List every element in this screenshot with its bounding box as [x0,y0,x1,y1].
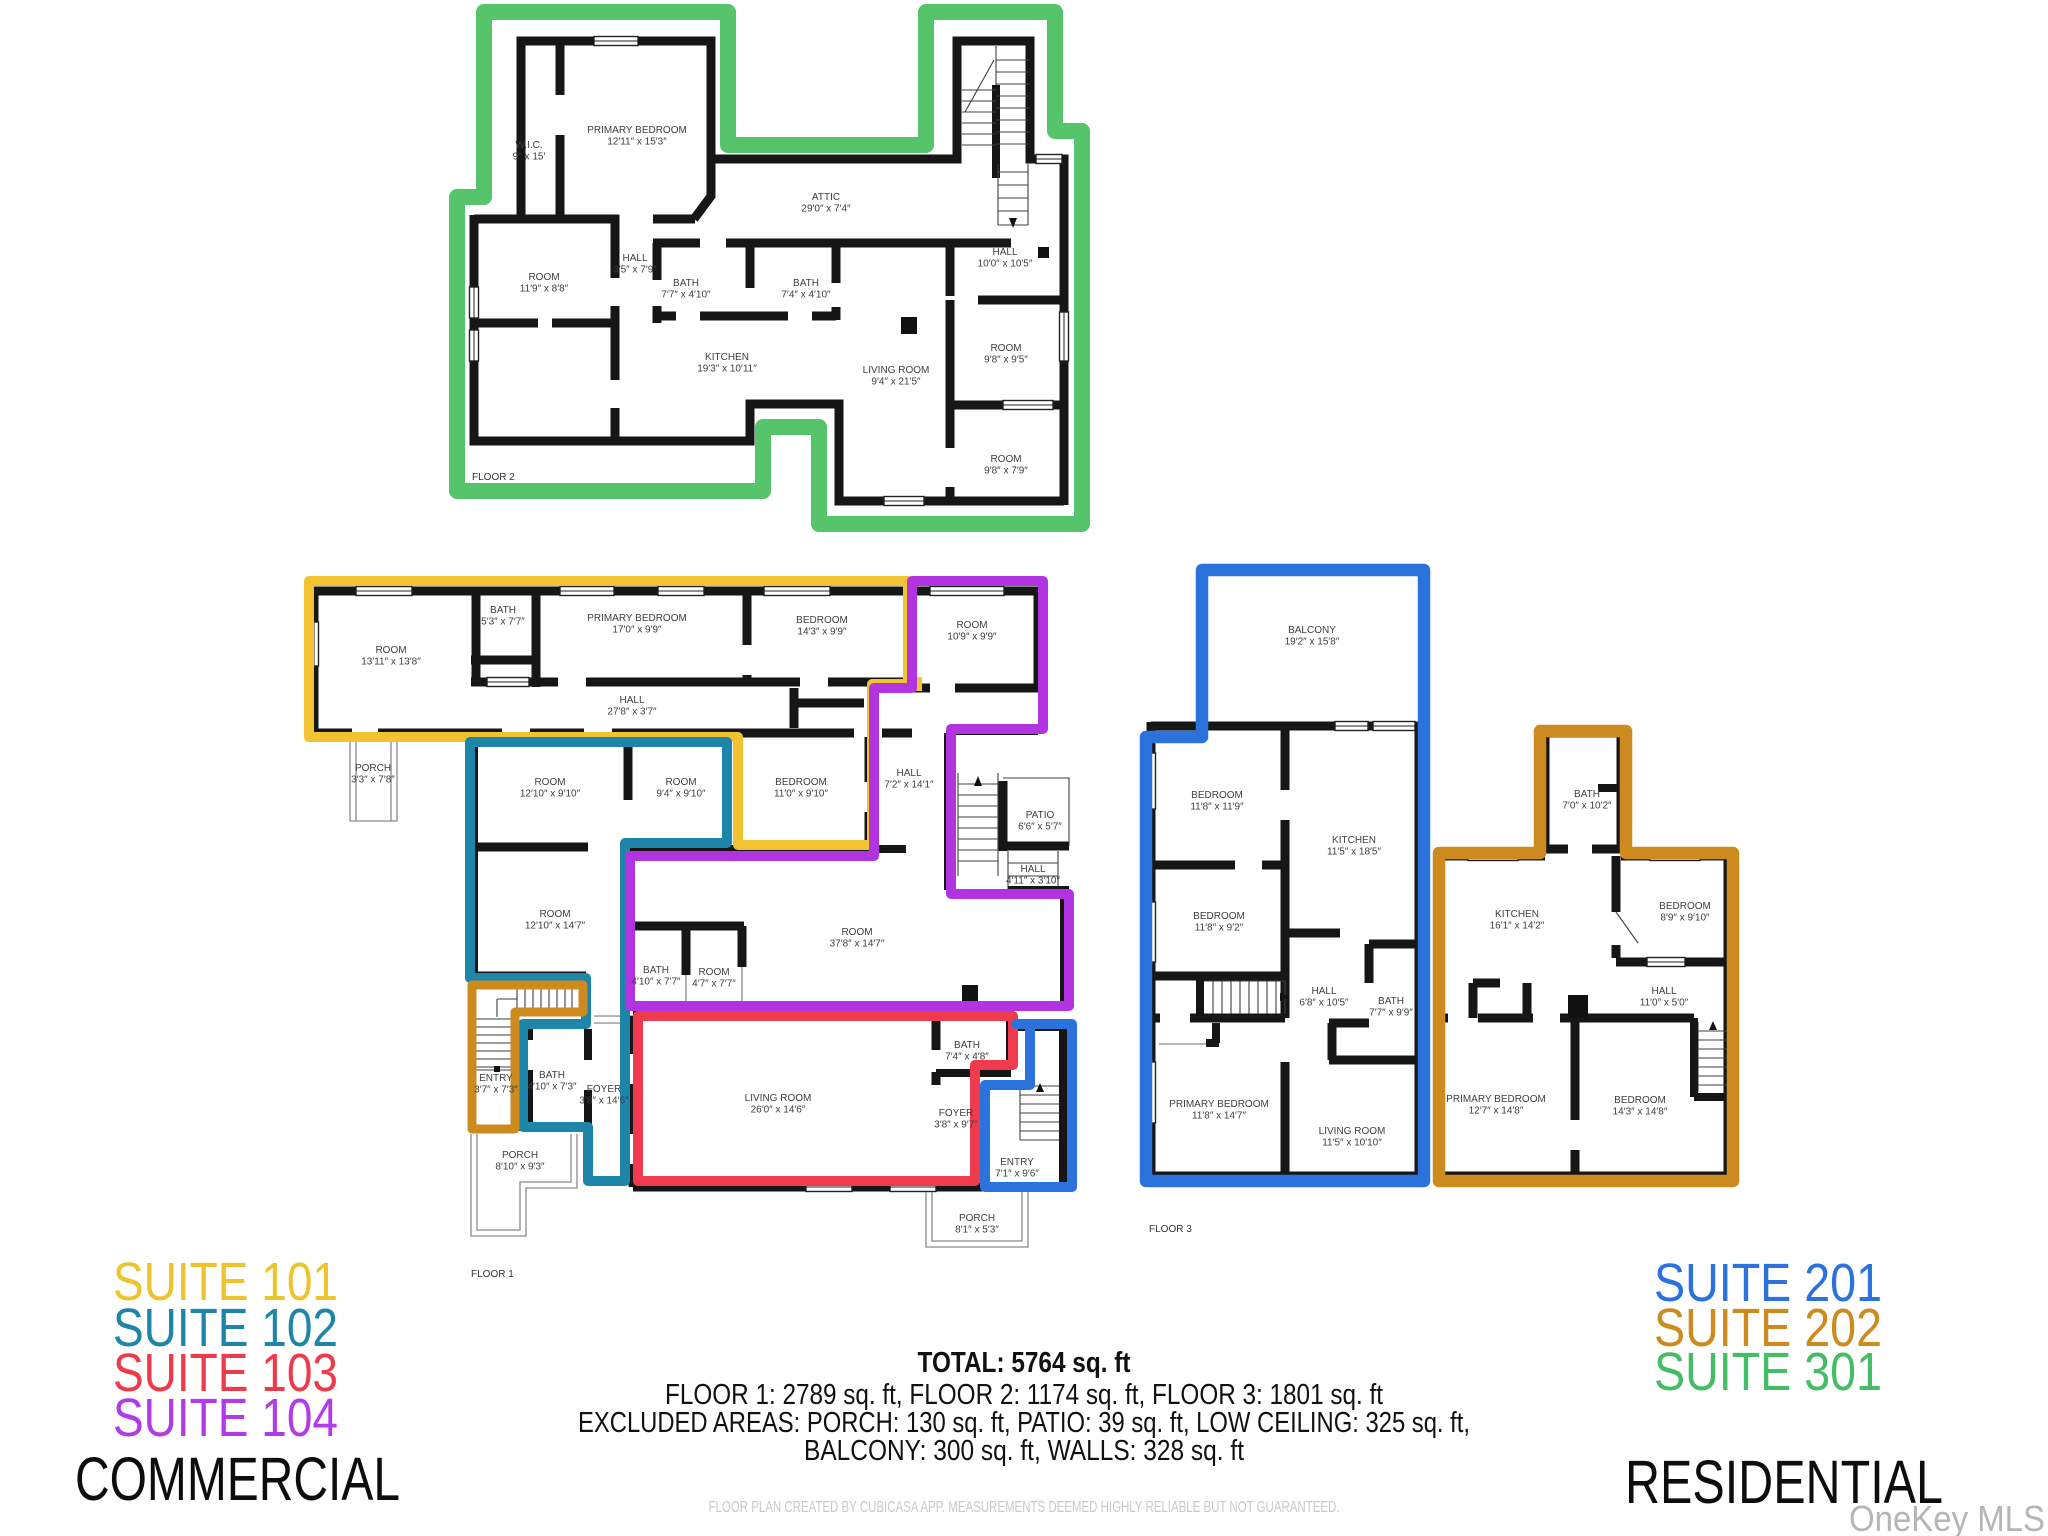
svg-text:HALL: HALL [1020,864,1045,875]
svg-text:BATH: BATH [954,1040,980,1051]
svg-text:HALL: HALL [1311,986,1336,997]
svg-text:ROOM: ROOM [539,909,570,920]
svg-text:11′0″ x 5′0″: 11′0″ x 5′0″ [1640,998,1689,1009]
svg-text:ROOM: ROOM [375,645,406,656]
svg-text:FOYER: FOYER [939,1108,973,1119]
svg-text:TOTAL: 5764 sq. ft: TOTAL: 5764 sq. ft [918,1347,1131,1379]
svg-text:14′3″ x 9′9″: 14′3″ x 9′9″ [797,627,847,638]
svg-text:4′7″ x 7′7″: 4′7″ x 7′7″ [692,979,736,990]
svg-text:PORCH: PORCH [959,1213,995,1224]
svg-text:6′6″ x 5′7″: 6′6″ x 5′7″ [1018,822,1062,833]
svg-text:7′2″ x 14′1″: 7′2″ x 14′1″ [884,780,934,791]
svg-text:4′10″ x 7′7″: 4′10″ x 7′7″ [631,977,681,988]
svg-text:11′8″ x 11′9″: 11′8″ x 11′9″ [1190,802,1244,813]
svg-text:PRIMARY BEDROOM: PRIMARY BEDROOM [587,613,687,624]
svg-text:PORCH: PORCH [502,1150,538,1161]
svg-text:ENTRY: ENTRY [1000,1157,1034,1168]
svg-text:3′8″ x 14′6″: 3′8″ x 14′6″ [579,1096,629,1107]
svg-text:16′1″ x 14′2″: 16′1″ x 14′2″ [1490,921,1545,932]
svg-text:4′10″ x 7′3″: 4′10″ x 7′3″ [527,1082,577,1093]
svg-text:37′8″ x 14′7″: 37′8″ x 14′7″ [830,939,885,950]
svg-text:BEDROOM: BEDROOM [775,777,827,788]
svg-text:ROOM: ROOM [528,272,559,283]
svg-text:HALL: HALL [992,247,1017,258]
svg-text:ROOM: ROOM [990,343,1021,354]
svg-text:BEDROOM: BEDROOM [1193,911,1245,922]
svg-text:8′9″ x 9′10″: 8′9″ x 9′10″ [1660,913,1710,924]
svg-text:KITCHEN: KITCHEN [1332,835,1376,846]
svg-text:7′1″ x 9′6″: 7′1″ x 9′6″ [995,1169,1039,1180]
svg-text:11′5″ x 10′10″: 11′5″ x 10′10″ [1322,1138,1382,1149]
svg-text:8′1″ x 5′3″: 8′1″ x 5′3″ [955,1225,999,1236]
svg-text:14′3″ x 14′8″: 14′3″ x 14′8″ [1613,1107,1668,1118]
svg-text:29′0″ x 7′4″: 29′0″ x 7′4″ [801,204,851,215]
svg-text:SUITE 104: SUITE 104 [113,1388,338,1448]
svg-text:FOYER: FOYER [587,1084,621,1095]
svg-text:COMMERCIAL: COMMERCIAL [75,1445,400,1513]
svg-text:PRIMARY BEDROOM: PRIMARY BEDROOM [1446,1094,1546,1105]
svg-text:BATH: BATH [673,278,699,289]
svg-text:PRIMARY BEDROOM: PRIMARY BEDROOM [587,125,687,136]
svg-text:8′10″ x 9′3″: 8′10″ x 9′3″ [495,1162,545,1173]
svg-text:7′4″ x 4′8″: 7′4″ x 4′8″ [945,1052,989,1063]
svg-text:BATH: BATH [793,278,819,289]
svg-text:BATH: BATH [1378,996,1404,1007]
svg-text:ATTIC: ATTIC [812,192,840,203]
svg-text:BATH: BATH [1574,789,1600,800]
svg-text:PATIO: PATIO [1026,810,1055,821]
svg-text:19′2″ x 15′8″: 19′2″ x 15′8″ [1285,637,1340,648]
svg-text:LIVING ROOM: LIVING ROOM [745,1093,812,1104]
svg-text:19′3″ x 10′11″: 19′3″ x 10′11″ [697,364,757,375]
svg-text:5′3″ x 7′7″: 5′3″ x 7′7″ [481,617,525,628]
svg-text:ROOM: ROOM [698,967,729,978]
svg-text:13′11″ x 13′8″: 13′11″ x 13′8″ [361,657,421,668]
svg-text:11′8″ x 9′2″: 11′8″ x 9′2″ [1195,923,1244,934]
svg-text:3′5″ x 7′9″: 3′5″ x 7′9″ [613,265,657,276]
svg-text:7′7″ x 9′9″: 7′7″ x 9′9″ [1369,1008,1413,1019]
svg-text:BATH: BATH [490,605,516,616]
svg-text:ROOM: ROOM [534,777,565,788]
svg-text:11′5″ x 18′5″: 11′5″ x 18′5″ [1327,847,1381,858]
svg-text:9′8″ x 9′5″: 9′8″ x 9′5″ [984,355,1028,366]
svg-text:HALL: HALL [622,253,647,264]
svg-text:KITCHEN: KITCHEN [1495,909,1539,920]
svg-text:BALCONY: 300 sq. ft, WALLS: 32: BALCONY: 300 sq. ft, WALLS: 328 sq. ft [804,1435,1244,1467]
svg-text:FLOOR 1: FLOOR 1 [471,1269,514,1280]
svg-text:26′0″ x 14′6″: 26′0″ x 14′6″ [751,1105,806,1116]
svg-text:10′0″ x 10′5″: 10′0″ x 10′5″ [978,259,1033,270]
svg-text:9′4″ x 9′10″: 9′4″ x 9′10″ [656,789,706,800]
svg-text:ROOM: ROOM [956,620,987,631]
svg-text:BEDROOM: BEDROOM [1659,901,1711,912]
svg-text:ROOM: ROOM [841,927,872,938]
svg-text:12′10″ x 14′7″: 12′10″ x 14′7″ [525,921,586,932]
svg-text:ENTRY: ENTRY [479,1073,513,1084]
svg-text:LIVING ROOM: LIVING ROOM [1319,1126,1386,1137]
svg-text:FLOOR PLAN CREATED BY CUBICASA: FLOOR PLAN CREATED BY CUBICASA APP. MEAS… [709,1499,1340,1516]
svg-text:3′8″ x 9′7″: 3′8″ x 9′7″ [934,1120,978,1131]
svg-text:BATH: BATH [643,965,669,976]
svg-text:12′10″ x 9′10″: 12′10″ x 9′10″ [520,789,581,800]
svg-text:ROOM: ROOM [665,777,696,788]
svg-text:HALL: HALL [1651,986,1676,997]
svg-text:10′9″ x 9′9″: 10′9″ x 9′9″ [947,632,997,643]
svg-text:11′0″ x 9′10″: 11′0″ x 9′10″ [774,789,828,800]
svg-text:11′8″ x 14′7″: 11′8″ x 14′7″ [1192,1111,1246,1122]
svg-text:6′8″ x 10′5″: 6′8″ x 10′5″ [1299,998,1349,1009]
svg-text:HALL: HALL [896,768,921,779]
svg-text:3′3″ x 7′8″: 3′3″ x 7′8″ [351,775,395,786]
svg-text:BALCONY: BALCONY [1288,625,1336,636]
svg-text:BATH: BATH [539,1070,565,1081]
svg-text:BEDROOM: BEDROOM [796,615,848,626]
svg-text:W.I.C.: W.I.C. [515,140,542,151]
svg-text:SUITE 301: SUITE 301 [1654,1342,1882,1402]
svg-text:7′4″ x 4′10″: 7′4″ x 4′10″ [781,290,831,301]
svg-text:9′8″ x 7′9″: 9′8″ x 7′9″ [984,466,1028,477]
svg-text:KITCHEN: KITCHEN [705,352,749,363]
svg-text:3′7″ x 7′3″: 3′7″ x 7′3″ [474,1085,518,1096]
svg-text:FLOOR 2: FLOOR 2 [472,472,515,483]
svg-text:9′4″ x 21′5″: 9′4″ x 21′5″ [871,377,921,388]
svg-text:HALL: HALL [619,695,644,706]
svg-text:27′8″ x 3′7″: 27′8″ x 3′7″ [607,707,657,718]
svg-text:12′7″ x 14′8″: 12′7″ x 14′8″ [1469,1106,1524,1117]
svg-text:BEDROOM: BEDROOM [1191,790,1243,801]
svg-text:11′9″ x 8′8″: 11′9″ x 8′8″ [520,284,569,295]
svg-text:ROOM: ROOM [990,454,1021,465]
svg-text:OneKey MLS: OneKey MLS [1849,1498,2045,1536]
svg-text:FLOOR 3: FLOOR 3 [1149,1224,1192,1235]
svg-text:PRIMARY BEDROOM: PRIMARY BEDROOM [1169,1099,1269,1110]
svg-text:7′7″ x 4′10″: 7′7″ x 4′10″ [661,290,711,301]
svg-text:17′0″ x 9′9″: 17′0″ x 9′9″ [612,625,662,636]
svg-text:4′11″ x 3′10″: 4′11″ x 3′10″ [1006,876,1060,887]
svg-text:LIVING ROOM: LIVING ROOM [863,365,930,376]
svg-text:9″ x 15′: 9″ x 15′ [513,152,546,163]
svg-text:12′11″ x 15′3″: 12′11″ x 15′3″ [607,137,667,148]
svg-text:PORCH: PORCH [355,763,391,774]
svg-text:7′0″ x 10′2″: 7′0″ x 10′2″ [1562,801,1612,812]
svg-text:BEDROOM: BEDROOM [1614,1095,1666,1106]
